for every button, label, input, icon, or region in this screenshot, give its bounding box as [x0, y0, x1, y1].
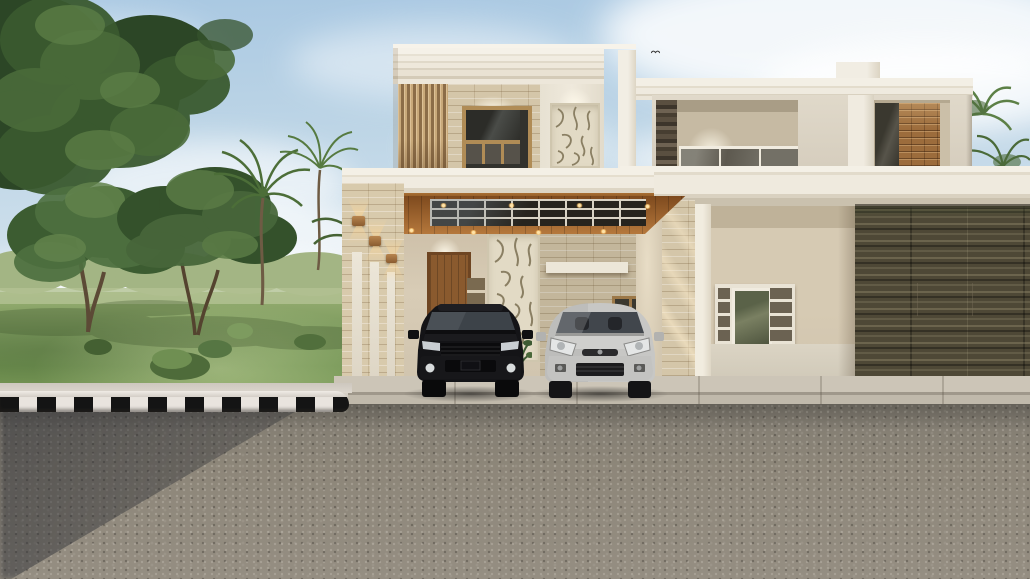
shelf-cells	[718, 288, 730, 342]
porch-window-unit	[715, 284, 795, 346]
wall-sconce	[352, 216, 365, 226]
window-glass	[732, 288, 772, 348]
parapet-cornice	[393, 48, 604, 84]
window-pane	[466, 144, 520, 164]
downlight	[508, 203, 515, 208]
downlight	[535, 230, 542, 235]
tree-big-topleft	[0, 0, 253, 195]
downlight	[440, 203, 447, 208]
porch-pillar	[695, 204, 711, 398]
suv-black	[408, 298, 533, 398]
front-pillar-cornice	[616, 55, 638, 81]
scene	[0, 0, 1030, 579]
shelf-cells	[770, 288, 792, 342]
terrace-wall-edge	[940, 103, 950, 170]
skylight-grid	[430, 199, 646, 226]
upper-floor-window	[462, 106, 532, 176]
downlight	[576, 203, 583, 208]
sedan-silver	[536, 296, 664, 399]
wall-sconce	[369, 236, 381, 246]
park-trees	[0, 0, 360, 400]
brick-accent-wall	[899, 103, 940, 170]
wood-slat-panel	[398, 84, 448, 178]
soffit-shadow	[855, 204, 1030, 209]
carving-pattern	[550, 103, 600, 168]
curb-stripes	[0, 397, 349, 412]
downlight-glow	[430, 238, 460, 253]
floating-ledge	[546, 262, 628, 273]
tile-wall-cream-band	[855, 283, 1030, 316]
dark-stone-accent	[656, 100, 677, 170]
window-pane	[466, 110, 520, 140]
downlight	[644, 204, 651, 209]
bird	[651, 49, 660, 54]
downlight	[600, 229, 607, 234]
carved-decor-panel	[550, 103, 600, 168]
terrace-window	[875, 103, 899, 170]
downlight	[408, 228, 415, 233]
wall-sconce	[386, 254, 397, 263]
carport-wood-ceiling	[356, 196, 692, 234]
porch-corner-shade	[838, 206, 855, 398]
downlight	[470, 230, 477, 235]
striped-curb	[0, 391, 349, 412]
